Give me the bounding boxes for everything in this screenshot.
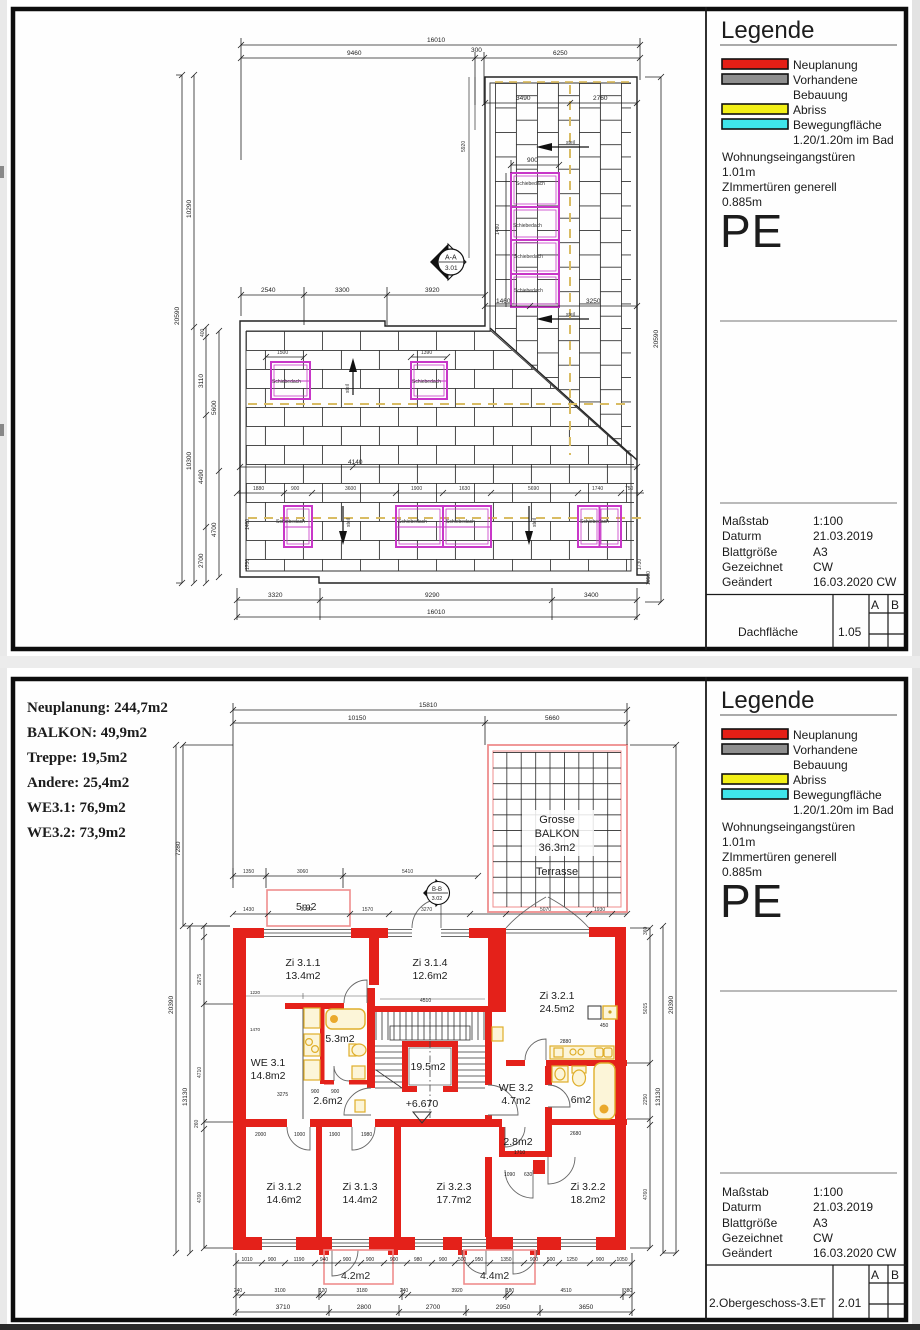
- svg-text:3320: 3320: [268, 592, 283, 599]
- svg-text:4.7m2: 4.7m2: [501, 1095, 530, 1107]
- svg-text:3490: 3490: [516, 95, 531, 102]
- svg-text:Neuplanung: Neuplanung: [793, 728, 858, 742]
- svg-text:Wohnungseingangstüren: Wohnungseingangstüren: [722, 820, 855, 834]
- svg-text:240: 240: [400, 1288, 409, 1294]
- svg-text:Daturm: Daturm: [722, 529, 761, 543]
- svg-text:ZImmertüren generell: ZImmertüren generell: [722, 850, 837, 864]
- svg-text:Zi 3.2.1: Zi 3.2.1: [539, 990, 574, 1002]
- svg-text:Andere: 25,4m2: Andere: 25,4m2: [27, 775, 129, 791]
- svg-text:4490: 4490: [198, 469, 205, 484]
- svg-text:380: 380: [624, 1288, 633, 1294]
- svg-text:900: 900: [343, 1257, 352, 1263]
- svg-text:900: 900: [596, 1257, 605, 1263]
- svg-text:300: 300: [471, 47, 482, 54]
- svg-text:Terrasse: Terrasse: [536, 866, 578, 878]
- svg-text:steil: steil: [345, 384, 351, 393]
- svg-text:2250: 2250: [643, 1094, 649, 1105]
- svg-text:900: 900: [331, 1089, 340, 1095]
- svg-text:500: 500: [547, 1257, 556, 1263]
- svg-text:Schiebedach: Schiebedach: [446, 519, 475, 525]
- svg-text:1.20/1.20m im Bad: 1.20/1.20m im Bad: [793, 133, 894, 147]
- svg-text:5070: 5070: [540, 907, 551, 913]
- svg-text:Zi 3.2.3: Zi 3.2.3: [436, 1181, 471, 1193]
- svg-text:3110: 3110: [198, 374, 205, 388]
- svg-text:Vorhandene: Vorhandene: [793, 73, 858, 87]
- svg-text:3.01: 3.01: [445, 265, 458, 272]
- svg-text:5690: 5690: [528, 486, 539, 492]
- svg-text:Neuplanung: Neuplanung: [793, 58, 858, 72]
- svg-text:2675: 2675: [197, 974, 203, 985]
- svg-text:900: 900: [291, 486, 300, 492]
- svg-text:1570: 1570: [362, 907, 373, 913]
- svg-text:20390: 20390: [668, 996, 675, 1014]
- svg-text:3280: 3280: [301, 907, 312, 913]
- svg-text:2.Obergeschoss-3.ET: 2.Obergeschoss-3.ET: [709, 1296, 826, 1310]
- svg-text:3060: 3060: [297, 869, 308, 875]
- svg-text:Schiebedach: Schiebedach: [272, 379, 301, 385]
- svg-text:5410: 5410: [402, 869, 413, 875]
- svg-text:1900: 1900: [411, 486, 422, 492]
- svg-text:Neuplanung: 244,7m2: Neuplanung: 244,7m2: [27, 700, 168, 716]
- svg-text:4510: 4510: [560, 1288, 571, 1294]
- svg-text:B: B: [891, 1268, 899, 1282]
- svg-text:120: 120: [319, 1288, 328, 1294]
- svg-text:Gezeichnet: Gezeichnet: [722, 1231, 783, 1245]
- svg-text:20590: 20590: [653, 330, 660, 348]
- svg-text:2.01: 2.01: [838, 1296, 862, 1310]
- svg-text:2.8m2: 2.8m2: [503, 1136, 532, 1148]
- svg-text:Maßstab: Maßstab: [722, 514, 769, 528]
- svg-text:24.5m2: 24.5m2: [539, 1003, 574, 1015]
- svg-text:1:100: 1:100: [813, 1185, 843, 1199]
- svg-text:2000: 2000: [255, 1132, 266, 1138]
- svg-text:1880: 1880: [253, 486, 264, 492]
- svg-text:Geändert: Geändert: [722, 1246, 773, 1260]
- svg-text:ZImmertüren generell: ZImmertüren generell: [722, 180, 837, 194]
- svg-text:2700: 2700: [198, 553, 205, 568]
- svg-text:5.3m2: 5.3m2: [325, 1033, 354, 1045]
- svg-text:10300: 10300: [186, 452, 193, 470]
- svg-text:Geändert: Geändert: [722, 575, 773, 589]
- svg-text:3.02: 3.02: [432, 896, 443, 902]
- svg-text:3180: 3180: [356, 1288, 367, 1294]
- svg-text:Bewegungfläche: Bewegungfläche: [793, 118, 882, 132]
- svg-text:Schiebedach: Schiebedach: [276, 519, 305, 525]
- svg-text:Bebauung: Bebauung: [793, 758, 848, 772]
- svg-text:4760: 4760: [643, 1189, 649, 1200]
- svg-text:Legende: Legende: [721, 17, 814, 44]
- svg-text:CW: CW: [813, 560, 834, 574]
- svg-text:1.01m: 1.01m: [722, 835, 755, 849]
- svg-text:3250: 3250: [586, 298, 601, 305]
- svg-text:1460: 1460: [496, 298, 511, 305]
- svg-text:2760: 2760: [593, 95, 608, 102]
- svg-text:PE: PE: [720, 205, 783, 257]
- svg-text:4140: 4140: [348, 459, 363, 466]
- svg-text:1500: 1500: [277, 350, 288, 356]
- svg-text:A: A: [871, 1268, 879, 1282]
- svg-text:1050: 1050: [616, 1257, 627, 1263]
- svg-text:B: B: [891, 598, 899, 612]
- svg-text:PE: PE: [720, 875, 783, 927]
- svg-text:4.4m2: 4.4m2: [480, 1270, 509, 1282]
- svg-text:1470: 1470: [250, 1027, 261, 1032]
- svg-text:Zi 3.1.4: Zi 3.1.4: [412, 957, 447, 969]
- svg-text:Abriss: Abriss: [793, 773, 826, 787]
- svg-text:2.6m2: 2.6m2: [313, 1095, 342, 1107]
- svg-text:450: 450: [600, 1023, 609, 1029]
- svg-text:Maßstab: Maßstab: [722, 1185, 769, 1199]
- svg-text:10150: 10150: [348, 715, 366, 722]
- svg-text:36.3m2: 36.3m2: [539, 842, 576, 854]
- svg-text:WE3.2: 73,9m2: WE3.2: 73,9m2: [27, 825, 126, 841]
- svg-text:1090: 1090: [504, 1172, 515, 1178]
- svg-text:1350: 1350: [500, 1257, 511, 1263]
- svg-text:400: 400: [200, 328, 206, 337]
- svg-text:A-A: A-A: [445, 255, 457, 262]
- svg-text:1190: 1190: [294, 1257, 305, 1263]
- svg-text:Daturm: Daturm: [722, 1200, 761, 1214]
- svg-text:WE3.1: 76,9m2: WE3.1: 76,9m2: [27, 800, 126, 816]
- svg-text:A3: A3: [813, 545, 828, 559]
- svg-text:13.4m2: 13.4m2: [285, 970, 320, 982]
- svg-text:WE 3.2: WE 3.2: [499, 1082, 534, 1094]
- svg-text:4.2m2: 4.2m2: [341, 1270, 370, 1282]
- svg-text:900: 900: [530, 1257, 539, 1263]
- svg-text:2700: 2700: [426, 1304, 441, 1311]
- svg-text:16010: 16010: [427, 609, 445, 616]
- svg-text:630: 630: [524, 1172, 533, 1178]
- svg-text:16.03.2020 CW: 16.03.2020 CW: [813, 1246, 897, 1260]
- svg-text:21.03.2019: 21.03.2019: [813, 1200, 873, 1214]
- svg-text:Zi 3.2.2: Zi 3.2.2: [570, 1181, 605, 1193]
- svg-text:Schiebedach: Schiebedach: [513, 223, 542, 229]
- svg-text:Grosse: Grosse: [539, 814, 574, 826]
- svg-text:900: 900: [390, 1257, 399, 1263]
- svg-text:Zi 3.1.3: Zi 3.1.3: [342, 1181, 377, 1193]
- svg-text:500: 500: [458, 1257, 467, 1263]
- svg-text:Schiebedach: Schiebedach: [580, 519, 609, 525]
- svg-text:3650: 3650: [579, 1304, 594, 1311]
- svg-text:steil: steil: [566, 312, 575, 318]
- svg-text:10290: 10290: [186, 200, 193, 218]
- svg-text:260: 260: [194, 1119, 200, 1128]
- svg-text:21.03.2019: 21.03.2019: [813, 529, 873, 543]
- svg-text:900: 900: [439, 1257, 448, 1263]
- svg-text:BALKON: 49,9m2: BALKON: 49,9m2: [27, 725, 147, 741]
- svg-text:14.8m2: 14.8m2: [250, 1070, 285, 1082]
- svg-text:6250: 6250: [553, 50, 568, 57]
- svg-text:CW: CW: [813, 1231, 834, 1245]
- svg-text:1250: 1250: [566, 1257, 577, 1263]
- svg-text:16010: 16010: [427, 37, 445, 44]
- svg-text:Blattgröße: Blattgröße: [722, 545, 778, 559]
- svg-text:3100: 3100: [274, 1288, 285, 1294]
- svg-text:6m2: 6m2: [571, 1094, 592, 1106]
- svg-text:+6.670: +6.670: [406, 1098, 439, 1110]
- svg-text:3400: 3400: [584, 592, 599, 599]
- svg-text:900: 900: [366, 1257, 375, 1263]
- svg-text:20590: 20590: [174, 307, 181, 325]
- svg-text:9460: 9460: [347, 50, 362, 57]
- svg-text:1350: 1350: [243, 869, 254, 875]
- svg-text:4700: 4700: [211, 522, 218, 537]
- svg-text:13130: 13130: [182, 1088, 189, 1106]
- svg-text:1010: 1010: [241, 1257, 252, 1263]
- svg-text:17.7m2: 17.7m2: [436, 1194, 471, 1206]
- svg-text:1730: 1730: [637, 559, 643, 570]
- svg-text:20390: 20390: [168, 996, 175, 1014]
- svg-text:15810: 15810: [419, 702, 437, 709]
- svg-text:1.20/1.20m im Bad: 1.20/1.20m im Bad: [793, 803, 894, 817]
- svg-text:1000: 1000: [294, 1132, 305, 1138]
- svg-text:A3: A3: [813, 1216, 828, 1230]
- svg-text:1.05: 1.05: [838, 625, 862, 639]
- svg-text:3600: 3600: [345, 486, 356, 492]
- svg-text:steil: steil: [566, 140, 575, 146]
- svg-text:18.2m2: 18.2m2: [570, 1194, 605, 1206]
- svg-text:1430: 1430: [243, 907, 254, 913]
- svg-text:1900: 1900: [329, 1132, 340, 1138]
- svg-text:900: 900: [311, 1089, 320, 1095]
- svg-text:1480: 1480: [495, 224, 501, 235]
- svg-text:5660: 5660: [545, 715, 560, 722]
- svg-text:12.6m2: 12.6m2: [412, 970, 447, 982]
- svg-text:750: 750: [625, 486, 634, 492]
- svg-text:Schiebedach: Schiebedach: [514, 288, 543, 294]
- svg-text:BALKON: BALKON: [535, 828, 580, 840]
- svg-text:180: 180: [506, 1288, 515, 1294]
- svg-text:1:100: 1:100: [813, 514, 843, 528]
- svg-text:3920: 3920: [451, 1288, 462, 1294]
- svg-text:Schiebedach: Schiebedach: [412, 379, 441, 385]
- svg-text:13130: 13130: [655, 1088, 662, 1106]
- svg-text:Vorhandene: Vorhandene: [793, 743, 858, 757]
- svg-text:Blattgröße: Blattgröße: [722, 1216, 778, 1230]
- svg-text:3710: 3710: [276, 1304, 291, 1311]
- svg-text:5600: 5600: [211, 400, 218, 415]
- svg-text:WE 3.1: WE 3.1: [251, 1057, 286, 1069]
- svg-text:1740: 1740: [592, 486, 603, 492]
- svg-text:Schiebedach: Schiebedach: [398, 519, 427, 525]
- svg-text:1730: 1730: [245, 559, 251, 570]
- svg-text:steil: steil: [346, 518, 352, 527]
- svg-text:2950: 2950: [496, 1304, 511, 1311]
- svg-text:Legende: Legende: [721, 687, 814, 714]
- svg-text:Schiebedach: Schiebedach: [514, 254, 543, 260]
- svg-text:2680: 2680: [570, 1131, 581, 1137]
- svg-text:Abriss: Abriss: [793, 103, 826, 117]
- svg-text:Bebauung: Bebauung: [793, 88, 848, 102]
- svg-text:14.4m2: 14.4m2: [342, 1194, 377, 1206]
- svg-text:Zi 3.1.1: Zi 3.1.1: [285, 957, 320, 969]
- svg-text:14.6m2: 14.6m2: [266, 1194, 301, 1206]
- svg-text:9290: 9290: [425, 592, 440, 599]
- svg-text:4710: 4710: [197, 1067, 203, 1078]
- svg-text:1930: 1930: [594, 907, 605, 913]
- svg-text:2540: 2540: [261, 287, 276, 294]
- svg-text:240: 240: [234, 1288, 243, 1294]
- svg-text:3920: 3920: [425, 287, 440, 294]
- svg-text:Gezeichnet: Gezeichnet: [722, 560, 783, 574]
- svg-text:1220: 1220: [250, 990, 261, 995]
- svg-text:Wohnungseingangstüren: Wohnungseingangstüren: [722, 150, 855, 164]
- svg-text:1980: 1980: [361, 1132, 372, 1138]
- svg-text:900: 900: [268, 1257, 277, 1263]
- svg-text:Bewegungfläche: Bewegungfläche: [793, 788, 882, 802]
- svg-text:940: 940: [320, 1257, 329, 1263]
- svg-text:3300: 3300: [335, 287, 350, 294]
- svg-text:Treppe: 19,5m2: Treppe: 19,5m2: [27, 750, 127, 766]
- svg-text:B-B: B-B: [432, 887, 442, 893]
- svg-text:360: 360: [643, 926, 649, 935]
- svg-text:2800: 2800: [357, 1304, 372, 1311]
- svg-text:1460: 1460: [245, 519, 251, 530]
- svg-text:1630: 1630: [459, 486, 470, 492]
- svg-text:A: A: [871, 598, 879, 612]
- svg-text:steil: steil: [532, 518, 538, 527]
- svg-text:1.01m: 1.01m: [722, 165, 755, 179]
- svg-text:5920: 5920: [461, 141, 467, 152]
- svg-text:3275: 3275: [277, 1092, 288, 1098]
- svg-text:1710: 1710: [514, 1150, 525, 1156]
- svg-text:Schiebedach: Schiebedach: [516, 181, 545, 187]
- svg-text:10590: 10590: [646, 571, 652, 585]
- svg-text:3270: 3270: [421, 907, 432, 913]
- svg-text:Dachfläche: Dachfläche: [738, 625, 798, 639]
- svg-text:19.5m2: 19.5m2: [410, 1061, 445, 1073]
- svg-text:5015: 5015: [643, 1003, 649, 1014]
- svg-text:2880: 2880: [560, 1039, 571, 1045]
- svg-text:1390: 1390: [421, 350, 432, 356]
- svg-text:950: 950: [475, 1257, 484, 1263]
- svg-text:980: 980: [414, 1257, 423, 1263]
- svg-text:Zi 3.1.2: Zi 3.1.2: [266, 1181, 301, 1193]
- svg-text:16.03.2020 CW: 16.03.2020 CW: [813, 575, 897, 589]
- svg-text:4760: 4760: [197, 1192, 203, 1203]
- svg-text:900: 900: [527, 157, 538, 164]
